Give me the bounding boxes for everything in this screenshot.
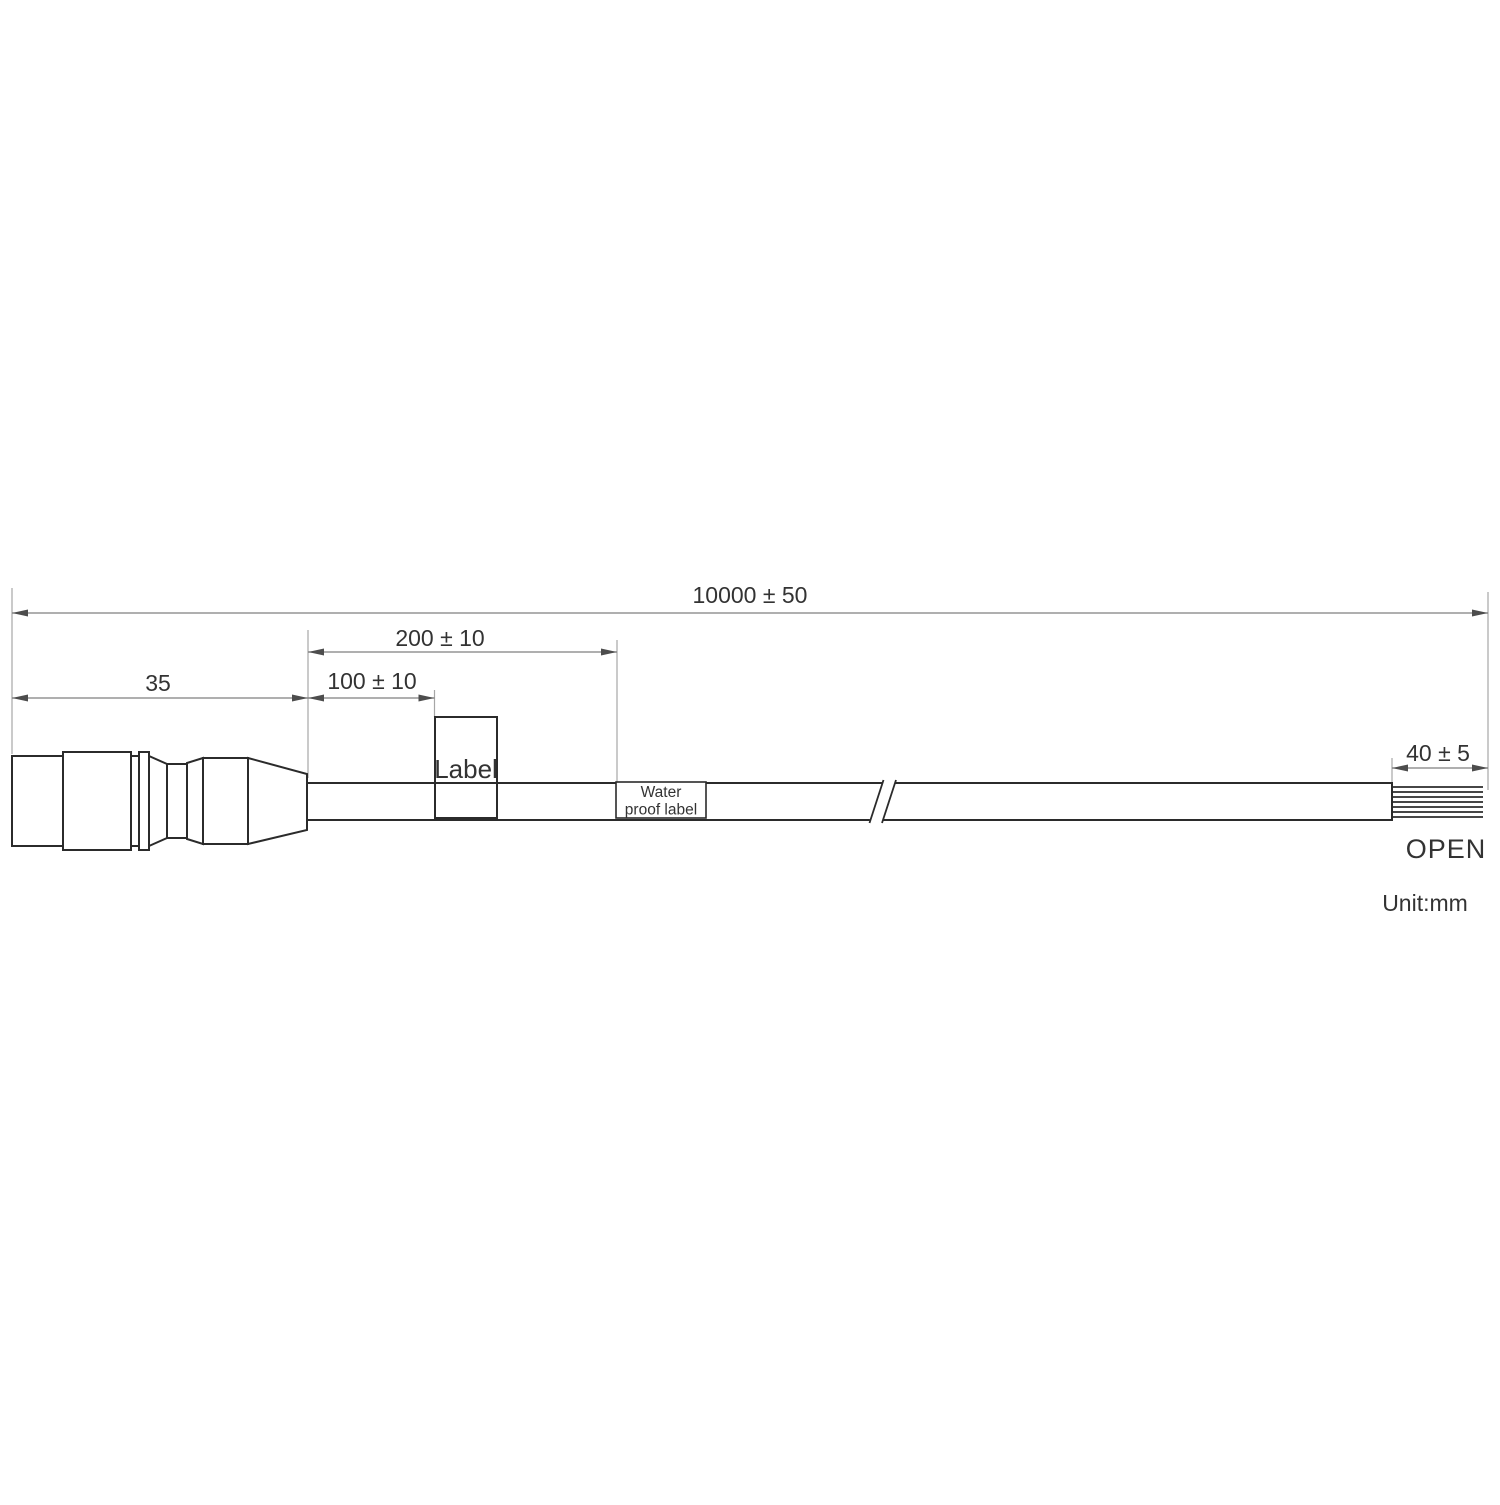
cable-drawing-svg: 10000 ± 50 200 ± 10 35 100 ± 10 [0,0,1500,1500]
dimension-label-start: 100 ± 10 [308,668,435,702]
open-end-text: OPEN [1406,834,1487,864]
waterproof-label-line2: proof label [625,802,697,819]
connector-front-barrel [12,756,63,846]
cable [307,783,1392,820]
connector-taper [149,756,167,846]
dimension-overall-text: 10000 ± 50 [693,582,808,608]
connector-neck [167,764,187,838]
wire-strands [1392,787,1483,817]
dimension-label-distance: 200 ± 10 [308,625,617,656]
dimension-strip-length: 40 ± 5 [1392,740,1488,772]
connector-knurl-main [63,752,131,850]
label-flag-text: Label [434,754,498,784]
connector-ring [131,756,139,846]
arrowhead-left [308,649,324,656]
dimension-label-start-text: 100 ± 10 [327,668,416,694]
connector-body [203,758,248,844]
connector-plug [12,752,307,850]
unit-note-text: Unit:mm [1382,890,1468,916]
waterproof-label-line1: Water [641,784,682,801]
dimension-connector-length: 35 [12,670,308,702]
cable-jacket [307,783,1392,820]
waterproof-label: Water proof label [616,782,706,819]
arrowhead-left [308,695,324,702]
arrowhead-right [419,695,435,702]
arrowhead-right [292,695,308,702]
dimension-label-distance-text: 200 ± 10 [395,625,484,651]
dimension-connector-length-text: 35 [145,670,171,696]
cable-drawing-canvas: 10000 ± 50 200 ± 10 35 100 ± 10 [0,0,1500,1500]
connector-cone [248,758,307,844]
connector-knurl-ring [139,752,149,850]
arrowhead-right [1472,765,1488,772]
dimension-strip-length-text: 40 ± 5 [1406,740,1470,766]
arrowhead-left [12,610,28,617]
arrowhead-right [601,649,617,656]
connector-flange [187,758,203,844]
dimension-overall: 10000 ± 50 [12,582,1488,617]
arrowhead-left [12,695,28,702]
arrowhead-right [1472,610,1488,617]
